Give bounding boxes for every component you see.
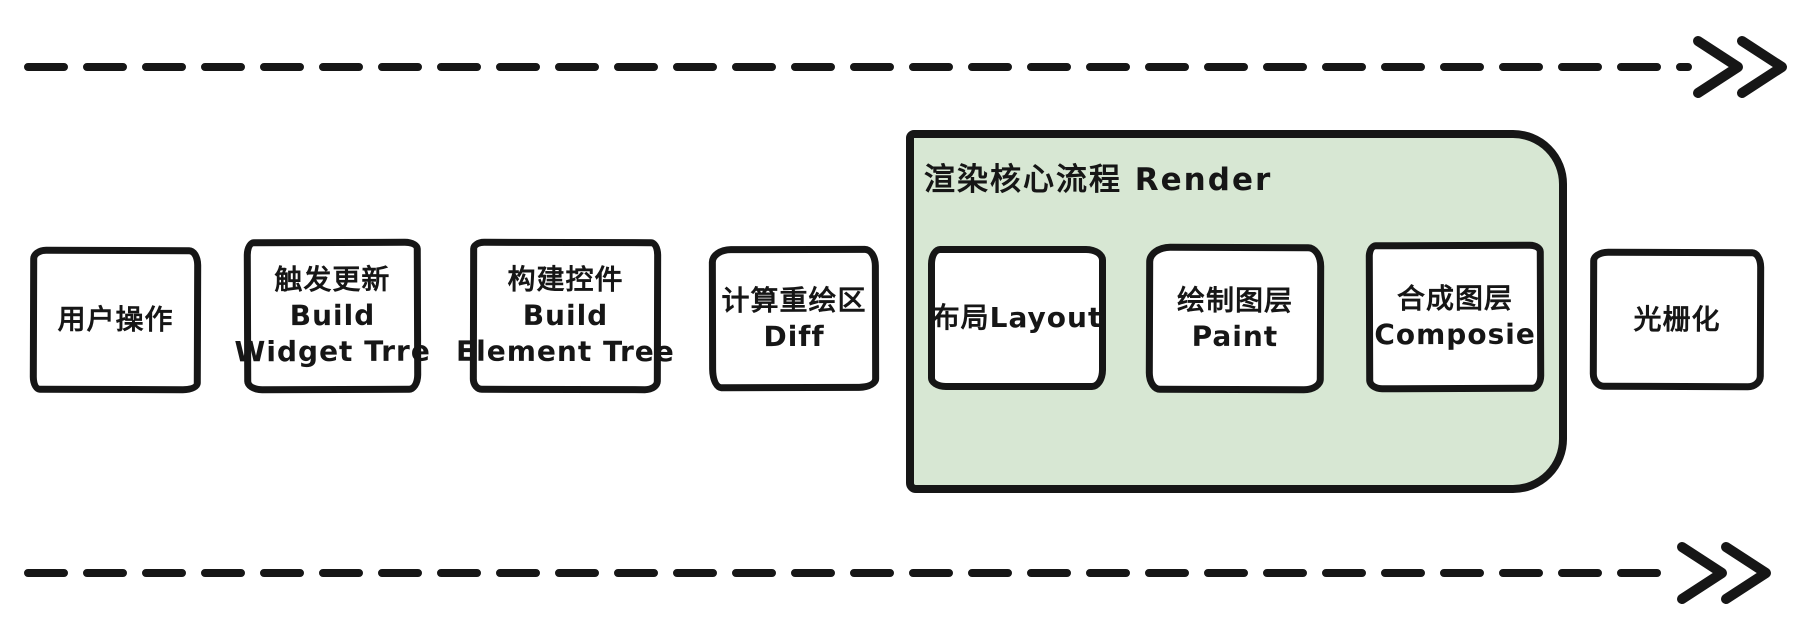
flow-node-composite: 合成图层 Composie [1366, 242, 1545, 393]
node-label: Build [523, 298, 609, 334]
flow-node-user-action: 用户操作 [30, 247, 202, 394]
render-group-label: 渲染核心流程 Render [924, 154, 1272, 199]
flow-node-rasterize: 光栅化 [1590, 249, 1764, 391]
diagram-canvas: 渲染核心流程 Render 用户操作 触发更新 Build Widget Trr… [0, 0, 1803, 627]
flow-node-diff: 计算重绘区 Diff [709, 246, 879, 391]
flow-node-build-element-tree: 构建控件 Build Element Tree [470, 239, 661, 393]
bottom-flow-arrow [0, 538, 1803, 608]
top-flow-arrow [0, 32, 1803, 102]
node-label: Element Tree [456, 334, 675, 370]
node-label: 触发更新 [274, 262, 390, 298]
node-label: Widget Trre [234, 334, 430, 371]
node-label: Composie [1374, 317, 1536, 353]
node-label: 布局Layout [932, 300, 1103, 336]
node-label: Paint [1192, 318, 1279, 354]
node-label: 光栅化 [1633, 301, 1720, 337]
node-label: 用户操作 [57, 302, 173, 338]
node-label: 构建控件 [508, 262, 624, 298]
node-label: 绘制图层 [1177, 282, 1293, 318]
node-label: Build [290, 298, 376, 334]
flow-node-trigger-update: 触发更新 Build Widget Trre [244, 239, 422, 394]
node-label: 合成图层 [1397, 281, 1513, 317]
flow-node-paint: 绘制图层 Paint [1146, 244, 1325, 394]
node-label: 计算重绘区 [721, 282, 866, 318]
node-label: Diff [763, 318, 824, 354]
flow-node-layout: 布局Layout [928, 246, 1106, 390]
